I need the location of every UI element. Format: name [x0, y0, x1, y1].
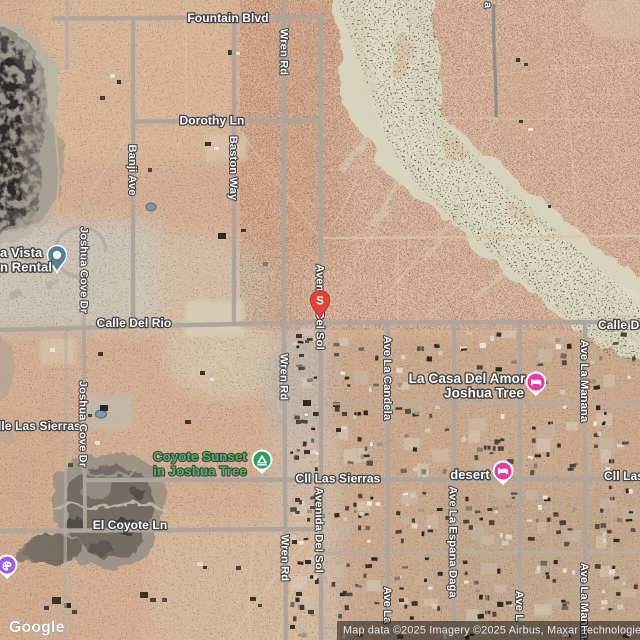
svg-text:Dorothy Ln: Dorothy Ln	[180, 114, 245, 128]
svg-text:La Casa Del Amor: La Casa Del Amor	[409, 371, 526, 386]
svg-text:Wren Rd: Wren Rd	[277, 354, 289, 401]
svg-text:Ave La Manana: Ave La Manana	[578, 340, 590, 423]
svg-text:Calle De: Calle De	[598, 318, 640, 332]
svg-text:Map data ©2025 Imagery ©2025 A: Map data ©2025 Imagery ©2025 Airbus, Max…	[343, 625, 640, 637]
svg-text:Google: Google	[9, 619, 65, 636]
svg-text:Fountain Blvd: Fountain Blvd	[187, 11, 268, 25]
svg-text:Baston Way: Baston Way	[227, 136, 239, 201]
svg-text:Ave La Espana Daga: Ave La Espana Daga	[446, 486, 458, 598]
svg-text:n Rental: n Rental	[0, 260, 52, 275]
svg-text:Ave La: Ave La	[381, 587, 393, 625]
svg-text:Ave La Candela: Ave La Candela	[381, 336, 393, 421]
svg-text:Coyote Sunset: Coyote Sunset	[153, 449, 247, 464]
svg-text:Joshua Cove Dr: Joshua Cove Dr	[77, 227, 89, 314]
svg-text:a: a	[481, 2, 493, 9]
svg-text:Joshua Tree: Joshua Tree	[444, 386, 524, 401]
svg-text:Ave L: Ave L	[513, 591, 525, 622]
svg-text:lle Las Sierras: lle Las Sierras	[0, 419, 81, 433]
svg-text:El Coyote Ln: El Coyote Ln	[93, 518, 168, 532]
svg-text:in Joshua Tree: in Joshua Tree	[153, 464, 247, 479]
svg-text:Cll Las: Cll Las	[604, 469, 640, 483]
svg-text:S: S	[316, 296, 324, 308]
svg-text:Wren Rd: Wren Rd	[277, 29, 289, 76]
svg-text:a Vista: a Vista	[0, 245, 43, 260]
svg-text:desert: desert	[450, 467, 490, 482]
svg-text:Wren Rd: Wren Rd	[278, 535, 290, 582]
svg-text:Calle Del Rio: Calle Del Rio	[97, 316, 172, 330]
svg-text:Avenida Del Sol: Avenida Del Sol	[312, 487, 324, 573]
svg-text:Cll Las Sierras: Cll Las Sierras	[296, 472, 381, 486]
svg-text:Joshua Cove Dr: Joshua Cove Dr	[76, 381, 88, 468]
svg-text:Banji Ave: Banji Ave	[126, 144, 138, 195]
